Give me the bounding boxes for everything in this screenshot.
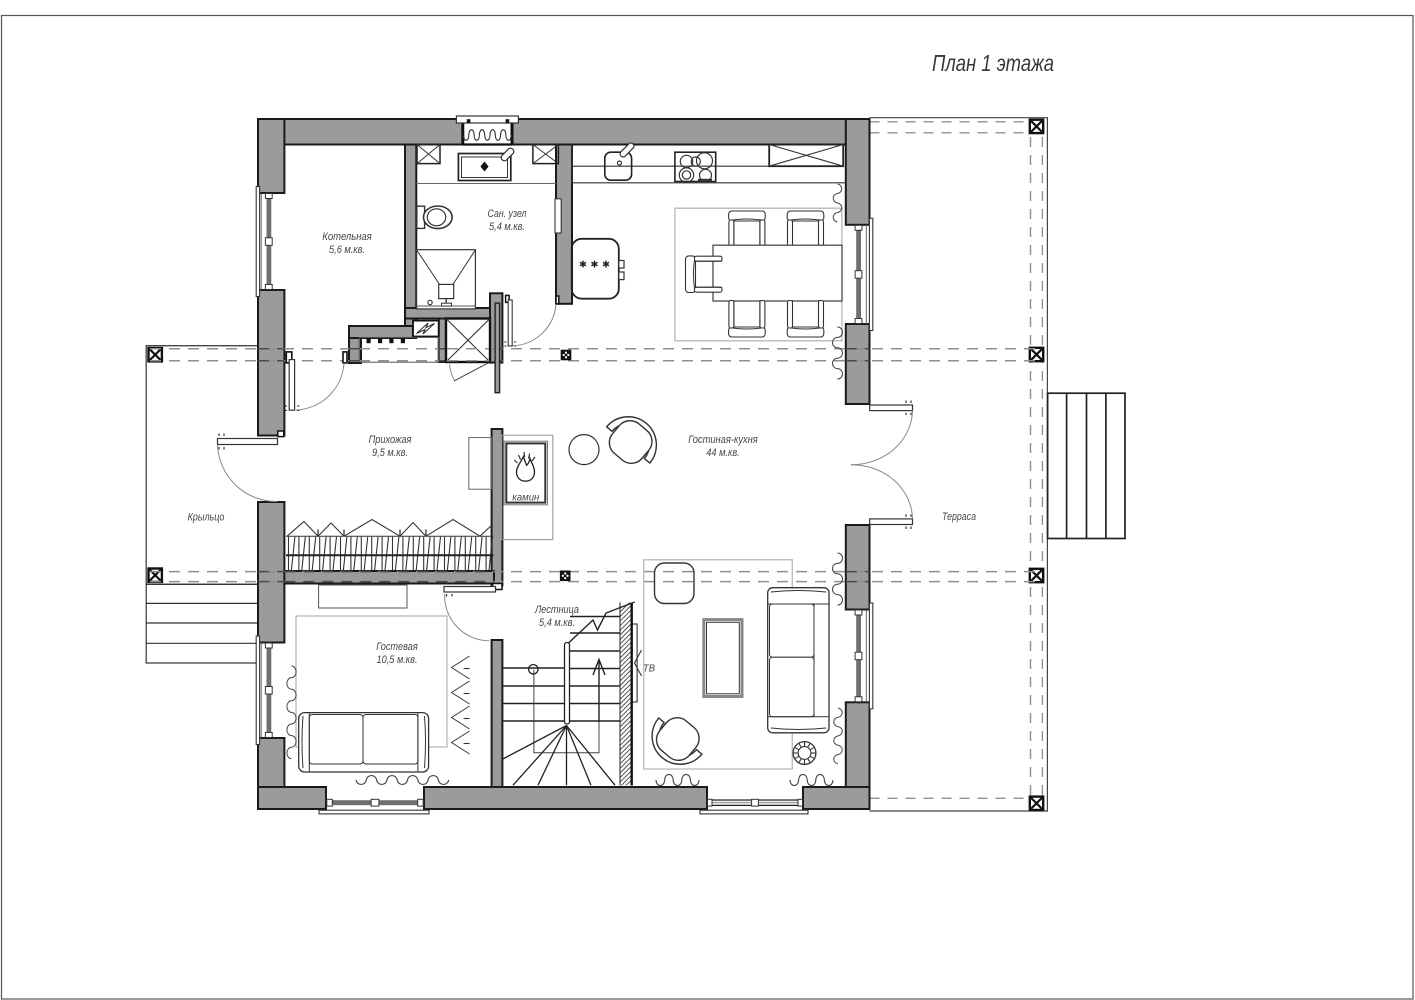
- svg-text:ТВ: ТВ: [643, 664, 655, 675]
- svg-text:5,4 м.кв.: 5,4 м.кв.: [489, 221, 525, 233]
- svg-text:10,5 м.кв.: 10,5 м.кв.: [377, 654, 418, 666]
- svg-text:✱: ✱: [602, 260, 610, 271]
- svg-text:9,5 м.кв.: 9,5 м.кв.: [372, 447, 408, 459]
- svg-text:Терраса: Терраса: [942, 511, 976, 523]
- svg-text:5,6 м.кв.: 5,6 м.кв.: [329, 244, 365, 256]
- svg-text:Гостевая: Гостевая: [376, 641, 418, 653]
- svg-text:✱: ✱: [579, 260, 587, 271]
- svg-text:Гостиная-кухня: Гостиная-кухня: [688, 434, 758, 446]
- svg-text:Сан. узел: Сан. узел: [488, 208, 527, 220]
- svg-text:План 1 этажа: План 1 этажа: [932, 50, 1054, 76]
- svg-text:Прихожая: Прихожая: [369, 434, 412, 446]
- svg-text:камин: камин: [512, 493, 539, 504]
- svg-text:Лестница: Лестница: [534, 604, 579, 616]
- svg-text:5,4 м.кв.: 5,4 м.кв.: [539, 617, 575, 629]
- svg-text:✱: ✱: [591, 260, 599, 271]
- svg-text:44 м.кв.: 44 м.кв.: [706, 447, 740, 459]
- svg-text:Крыльцо: Крыльцо: [188, 512, 225, 524]
- svg-text:Котельная: Котельная: [322, 231, 372, 243]
